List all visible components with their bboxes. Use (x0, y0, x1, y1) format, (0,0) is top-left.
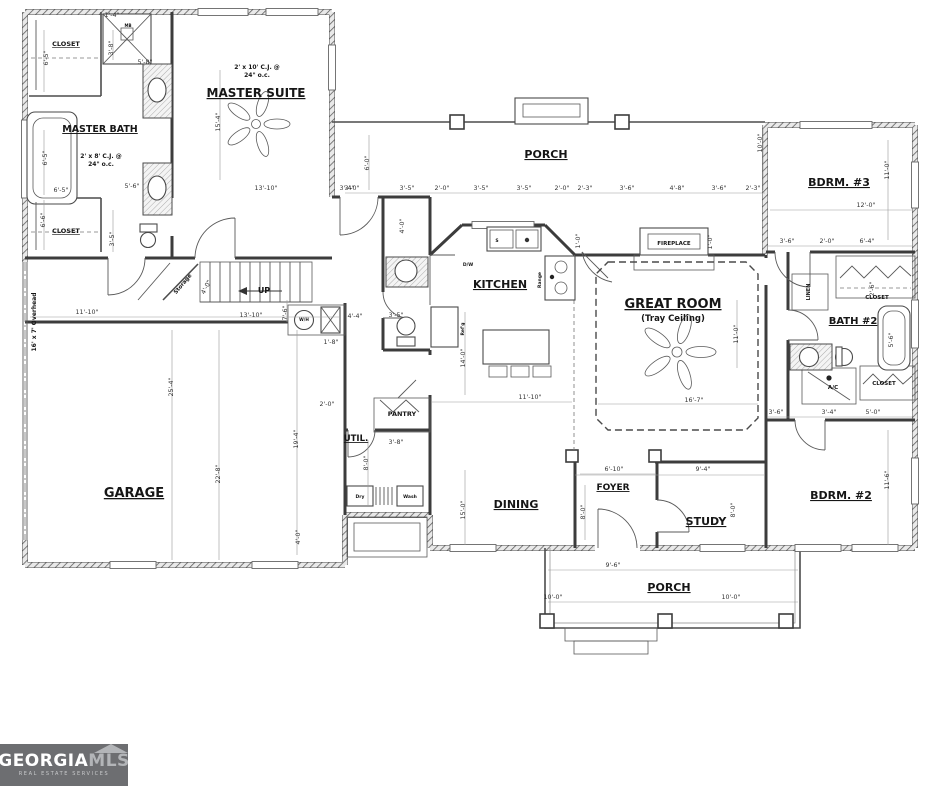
room-label-util: UTIL. (344, 434, 369, 444)
dimension-label-40: 13'-10" (240, 312, 263, 319)
room-label-garage: GARAGE (104, 486, 164, 501)
dimension-label-11: 6'-0" (364, 155, 371, 170)
dimension-label-45: 22'-8" (215, 464, 222, 483)
room-label-cj-note-bath-2: 24" o.c. (88, 161, 114, 168)
dimension-label-42: 11'-10" (76, 309, 99, 316)
room-label-storage: Storage (173, 273, 193, 296)
dimension-label-29: 10'-0" (544, 594, 563, 601)
dimension-label-7: 3'-6" (620, 185, 635, 192)
dimension-label-14: 11'-0" (884, 160, 891, 179)
dimension-label-2: 2'-0" (435, 185, 450, 192)
fixtures (27, 14, 910, 506)
dimension-label-1: 3'-5" (400, 185, 415, 192)
dimension-label-37: 2'-0" (320, 401, 335, 408)
dimension-label-57: 6'-6" (40, 212, 47, 227)
dimension-label-5: 2'-0" (555, 185, 570, 192)
kitchen-island (483, 330, 549, 364)
room-label-dining: DINING (494, 498, 539, 511)
up-arrow (238, 287, 247, 295)
floor-plan-drawing: MASTER BATHMASTER SUITECLOSETCLOSETPORCH… (0, 0, 940, 788)
foyer-column (566, 450, 578, 462)
doors (108, 197, 825, 548)
dimension-label-9: 3'-6" (712, 185, 727, 192)
room-label-porch-bottom: PORCH (647, 581, 690, 594)
porch-column (450, 115, 464, 129)
room-label-great-room: GREAT ROOM (624, 297, 721, 312)
dimension-label-21: 3'-4" (822, 409, 837, 416)
dimension-label-41: 7'-6" (282, 305, 289, 320)
room-label-master-bath: MASTER BATH (62, 124, 138, 135)
room-label-cj-note-suite-1: 2' x 10' C.J. @ (234, 64, 280, 71)
dimension-label-46: 19'-4" (293, 429, 300, 448)
floor-plan-sheet: MASTER BATHMASTER SUITECLOSETCLOSETPORCH… (0, 0, 940, 788)
dimension-label-56: 6'-5" (54, 187, 69, 194)
room-label-fireplace: FIREPLACE (657, 241, 691, 247)
dimension-label-31: 16'-7" (685, 397, 704, 404)
room-label-study: STUDY (686, 515, 728, 528)
dimension-label-8: 4'-8" (670, 185, 685, 192)
front-bay (515, 98, 588, 124)
room-label-dishwasher: D/W (463, 262, 473, 268)
ceiling-fan-master-suite (226, 90, 290, 158)
dimension-label-30: 10'-0" (722, 594, 741, 601)
porch-column (615, 115, 629, 129)
dimension-label-39: 1'-8" (324, 339, 339, 346)
dimension-label-32: 11'-0" (733, 324, 740, 343)
room-label-kitchen: KITCHEN (473, 278, 527, 291)
dimension-label-35: 4'-0" (399, 218, 406, 233)
dimension-label-43: 4'-0" (200, 279, 213, 296)
dimension-label-55: 6'-5" (42, 150, 49, 165)
toilet (397, 317, 415, 335)
toilet (140, 224, 157, 232)
porch-column (540, 614, 554, 628)
room-label-ac-closet: A/C (828, 385, 838, 391)
room-label-master-suite: MASTER SUITE (207, 86, 306, 100)
dimension-label-54: 6'-5" (43, 50, 50, 65)
dimension-label-4: 3'-5" (517, 185, 532, 192)
dimension-label-50: 15'-0" (460, 500, 467, 519)
roof-icon (94, 744, 128, 753)
stool (489, 366, 507, 377)
dimension-label-48: 3'-8" (389, 439, 404, 446)
room-label-cj-note-suite-2: 24" o.c. (244, 72, 270, 79)
dimension-label-20: 3'-6" (769, 409, 784, 416)
dimension-label-19: 5'-6" (888, 332, 895, 347)
dimension-label-49: 8'-0" (363, 455, 370, 470)
dimension-label-38: 4'-4" (348, 313, 363, 320)
room-label-shower-head: MB (124, 23, 131, 28)
garage-overhead-door (23, 262, 27, 540)
dimension-label-58: 3'-5" (109, 231, 116, 246)
room-label-refrigerator: Ref'g (460, 322, 466, 335)
room-label-washer: Wash (403, 494, 417, 500)
dimension-label-12: 10'-0" (757, 133, 764, 152)
room-label-great-room-sub: (Tray Ceiling) (641, 314, 705, 324)
dimension-label-62: 1'-4" (105, 12, 120, 19)
room-label-range: Range (537, 272, 543, 288)
dimension-label-13: 12'-0" (857, 202, 876, 209)
logo-tagline: REAL ESTATE SERVICES (19, 771, 110, 777)
dimension-label-18: 2'-6" (869, 281, 876, 296)
dimension-label-61: 5'-8" (138, 59, 153, 66)
dimension-label-27: 8'-0" (730, 502, 737, 517)
dimension-label-59: 5'-6" (125, 183, 140, 190)
stairs (200, 262, 312, 302)
dimension-label-6: 2'-3" (578, 185, 593, 192)
dimension-label-24: 6'-10" (605, 466, 624, 473)
dimension-label-51: 15'-4" (215, 112, 222, 131)
stool (533, 366, 551, 377)
room-label-porch-top: PORCH (524, 148, 567, 161)
porch-column (658, 614, 672, 628)
dimension-label-17: 6'-4" (860, 238, 875, 245)
dimension-label-63: 1'-0" (707, 234, 714, 249)
room-label-bdrm2: BDRM. #2 (810, 489, 872, 502)
room-label-overhead-door: 16' x 7' Overhead (31, 292, 38, 351)
dimension-label-53: 3'-4" (340, 185, 355, 192)
porch-steps (565, 628, 657, 641)
dimension-label-33: 11'-10" (519, 394, 542, 401)
dimension-label-64: 1'-0" (575, 233, 582, 248)
room-label-foyer: FOYER (596, 483, 629, 493)
room-label-water-heater: W/H (299, 317, 309, 322)
porch-structures (332, 98, 800, 654)
logo-brand: GEORGIAMLS (0, 753, 130, 770)
dimension-label-16: 2'-0" (820, 238, 835, 245)
refrigerator-box (431, 307, 458, 347)
ceiling-fan-great-room (642, 313, 716, 391)
dimension-label-15: 3'-6" (780, 238, 795, 245)
dimension-label-47: 4'-0" (295, 529, 302, 544)
room-label-bath2: BATH #2 (829, 316, 878, 327)
dimension-label-23: 11'-6" (884, 470, 891, 489)
dimension-label-22: 5'-0" (866, 409, 881, 416)
room-label-linen: LINEN (806, 284, 812, 301)
dimension-label-52: 13'-10" (255, 185, 278, 192)
room-label-closet-bdrm2: CLOSET (872, 381, 896, 387)
room-label-up: UP (258, 286, 270, 295)
stool (511, 366, 529, 377)
foyer-column (649, 450, 661, 462)
room-label-closet-master-top: CLOSET (52, 40, 80, 48)
range (545, 256, 575, 300)
room-label-sink: S (495, 238, 498, 244)
tray-ceiling (596, 262, 758, 430)
dimension-label-3: 3'-5" (474, 185, 489, 192)
room-label-closet-master-bottom: CLOSET (52, 227, 80, 235)
dimension-label-34: 14'-0" (460, 348, 467, 367)
room-label-pantry: PANTRY (388, 410, 417, 418)
porch-column (779, 614, 793, 628)
room-label-bdrm3: BDRM. #3 (808, 176, 870, 189)
room-label-cj-note-bath-1: 2' x 8' C.J. @ (80, 153, 121, 160)
georgia-mls-logo: GEORGIAMLS REAL ESTATE SERVICES (0, 744, 128, 786)
dimension-label-10: 2'-3" (746, 185, 761, 192)
dimension-label-26: 8'-0" (580, 504, 587, 519)
room-label-dryer: Dry (356, 494, 365, 500)
dimension-label-25: 9'-4" (696, 466, 711, 473)
dimension-label-28: 9'-6" (606, 562, 621, 569)
dimension-label-60: 3'-8" (108, 40, 115, 55)
dimension-label-44: 25'-4" (168, 377, 175, 396)
dimension-label-36: 3'-5" (389, 312, 404, 319)
